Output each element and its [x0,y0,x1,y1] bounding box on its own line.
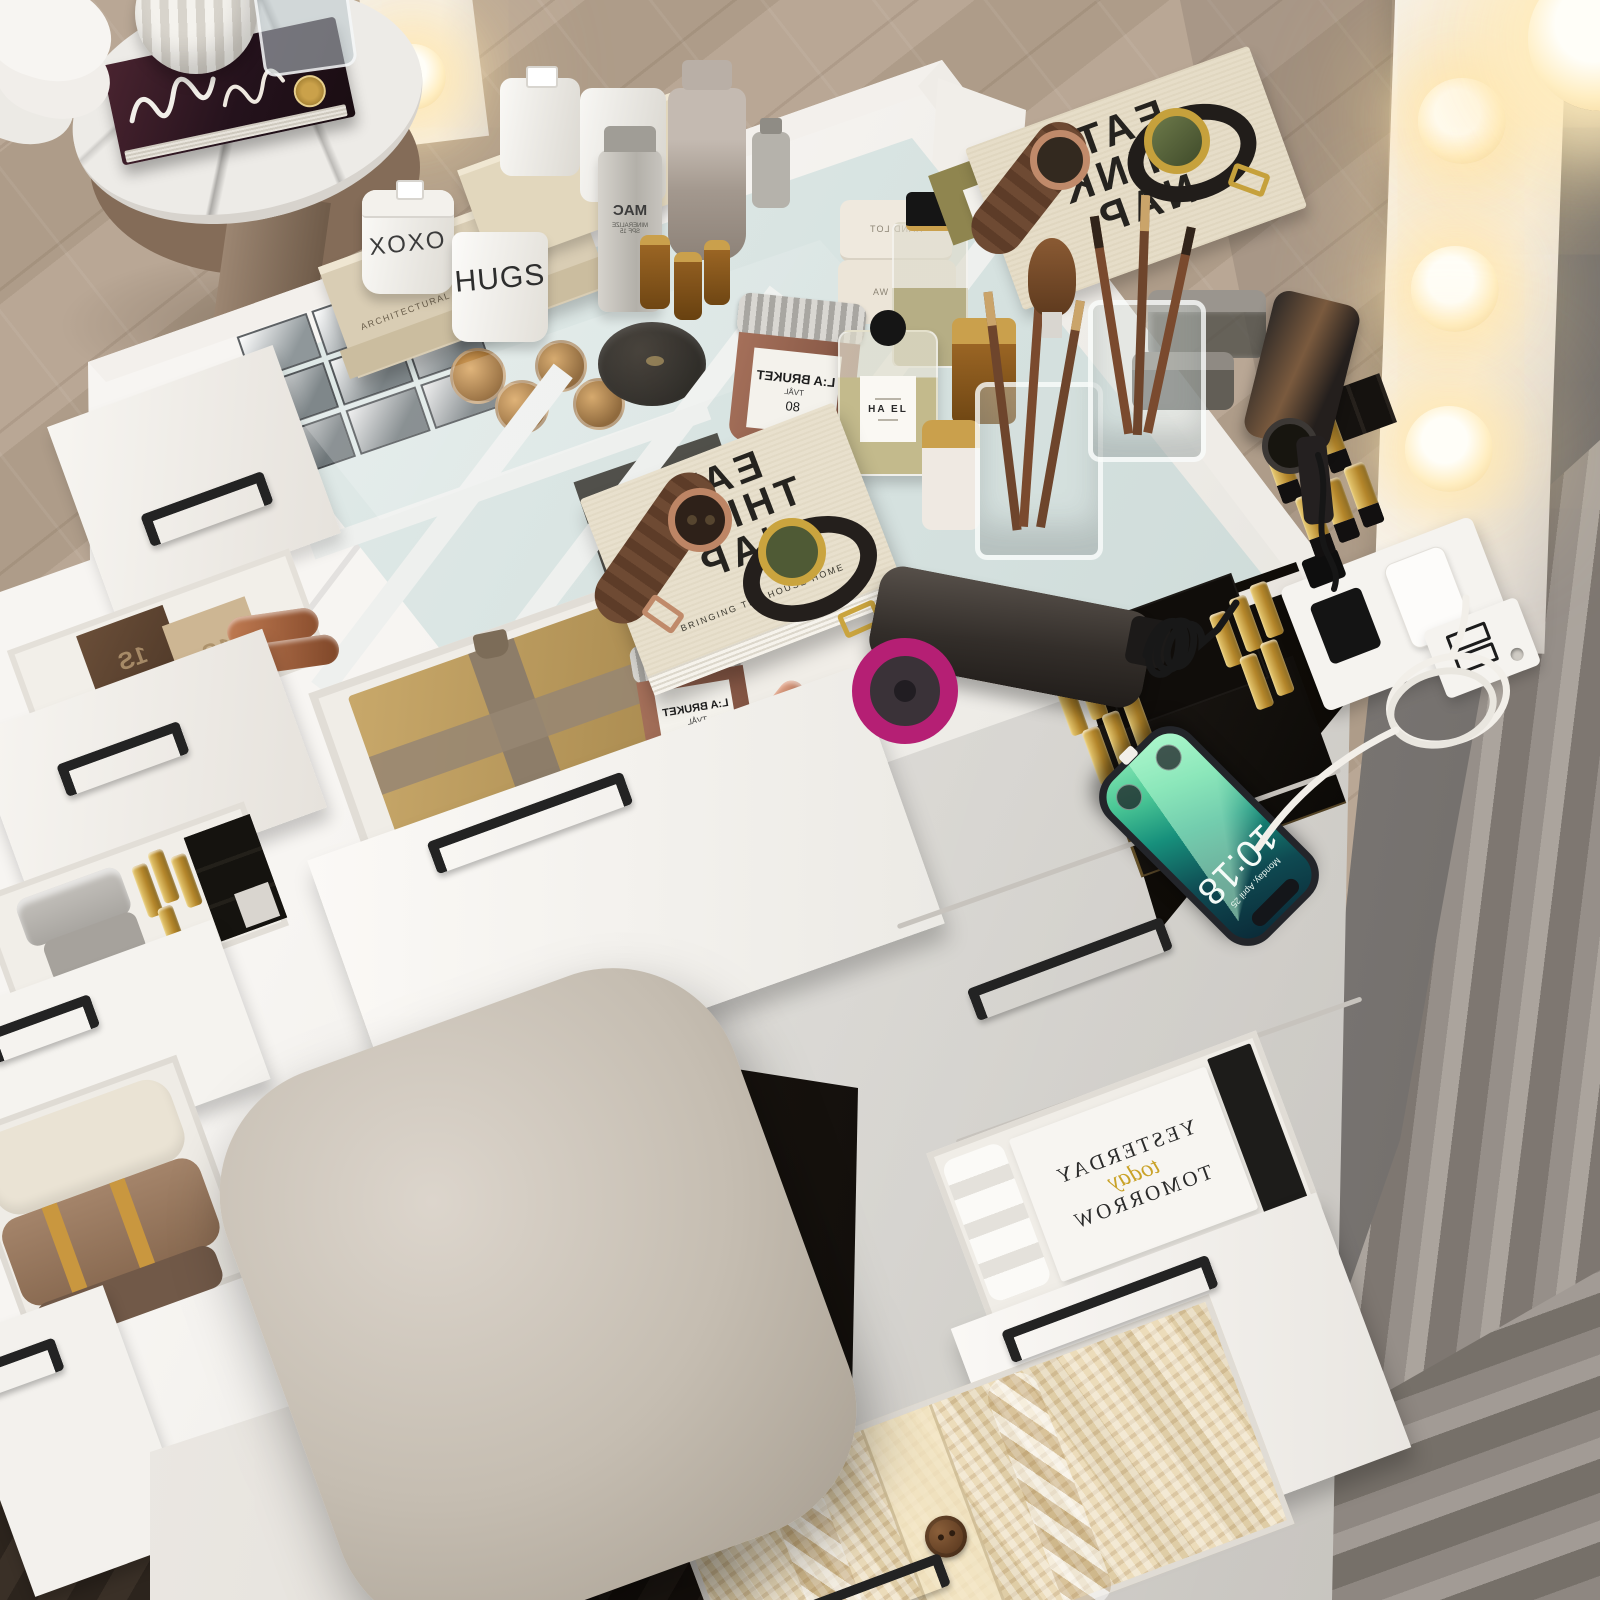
white-cable-loop [1383,660,1501,755]
dryer-coiled-cable [1146,603,1236,674]
scene: 1S 1S [0,0,1600,1600]
white-charging-cable [1258,598,1466,848]
hanging-dryer-cable [1318,455,1336,589]
